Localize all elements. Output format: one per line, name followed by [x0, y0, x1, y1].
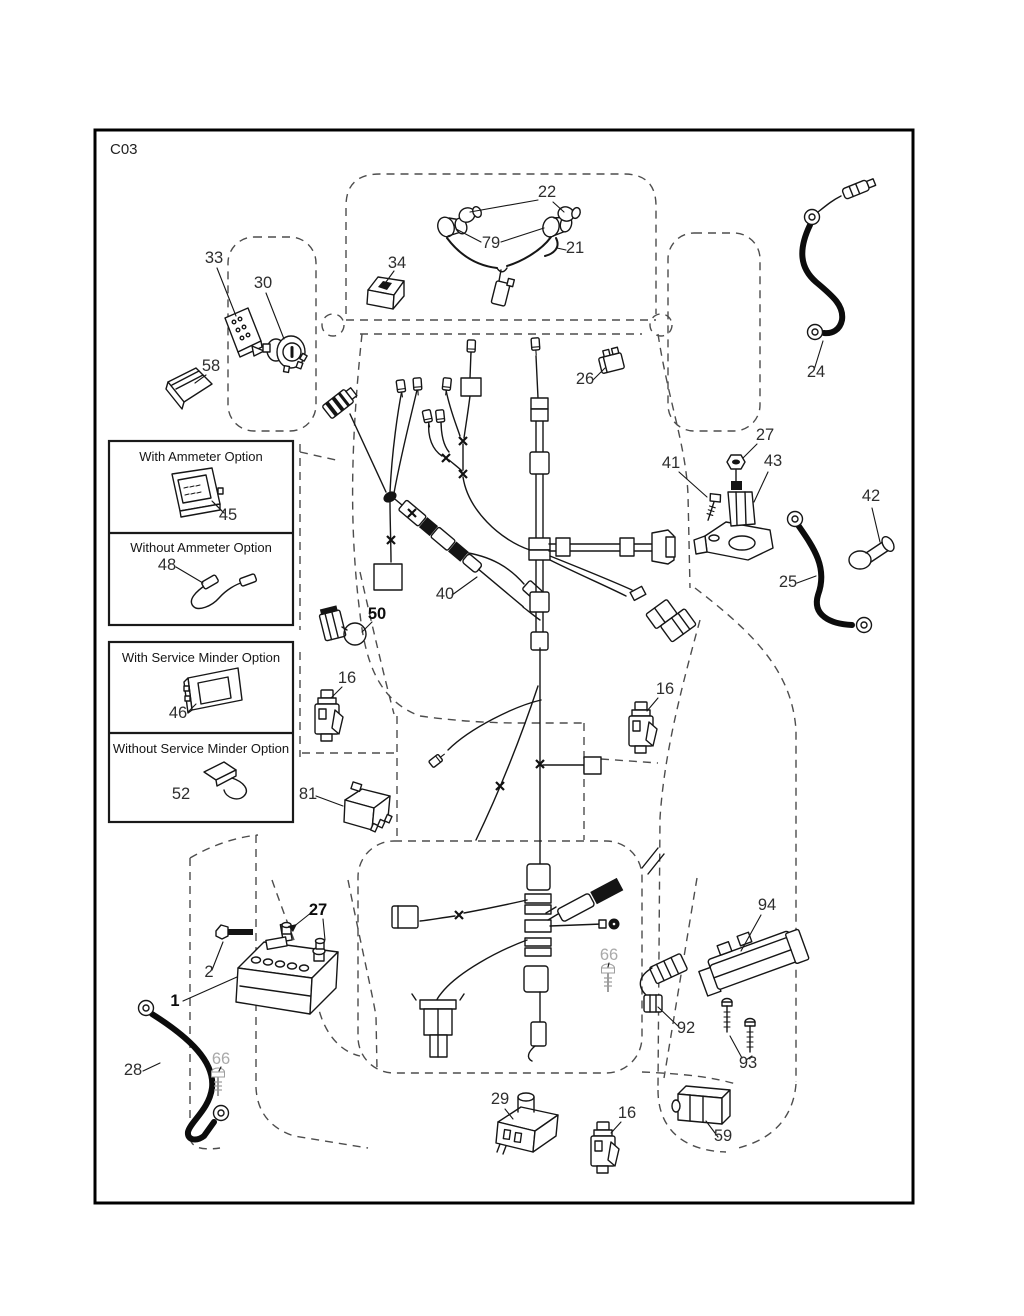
callout-27: 27 [756, 426, 774, 444]
service-minder-without-title: Without Service Minder Option [113, 741, 289, 756]
callout-16: 16 [618, 1104, 636, 1122]
lower-harness [392, 848, 664, 1061]
callout-93: 93 [739, 1054, 757, 1072]
interlock-switch-right [629, 702, 657, 753]
callout-24: 24 [807, 363, 825, 381]
ignition-switch [263, 336, 307, 372]
callout-66: 66 [212, 1050, 230, 1068]
callout-27: 27 [309, 901, 327, 919]
callout-48: 48 [158, 556, 176, 574]
center-loom [429, 338, 697, 866]
service-minder-option-box: With Service Minder Option Without Servi… [109, 642, 293, 822]
ammeter-with-title: With Ammeter Option [139, 449, 263, 464]
callout-50: 50 [368, 605, 386, 623]
terminal-boot [849, 535, 896, 569]
callout-45: 45 [219, 506, 237, 524]
callout-94: 94 [758, 896, 776, 914]
callout-33: 33 [205, 249, 223, 267]
callout-2: 2 [204, 963, 213, 981]
interlock-switch-bottom [591, 1122, 619, 1173]
callout-59: 59 [714, 1127, 732, 1145]
callout-21: 21 [566, 239, 584, 257]
callout-52: 52 [172, 785, 190, 803]
callout-79: 79 [482, 234, 500, 252]
callout-41: 41 [662, 454, 680, 472]
relay-module [672, 1086, 730, 1124]
callout-1: 1 [170, 992, 179, 1010]
battery [216, 923, 338, 1015]
callout-34: 34 [388, 254, 406, 272]
interlock-switch-left [315, 690, 343, 741]
callout-29: 29 [491, 1090, 509, 1108]
battery-nut [282, 923, 291, 935]
callout-16: 16 [338, 669, 356, 687]
callout-42: 42 [862, 487, 880, 505]
callout-81: 81 [299, 785, 317, 803]
callout-58: 58 [202, 357, 220, 375]
control-module [640, 916, 809, 1060]
ammeter-option-box: With Ammeter Option Without Ammeter Opti… [109, 441, 293, 625]
callout-26: 26 [576, 370, 594, 388]
callout-25: 25 [779, 573, 797, 591]
callout-16: 16 [656, 680, 674, 698]
battery-bolt [216, 925, 253, 939]
page-code: C03 [110, 141, 138, 158]
ground-cable-short [788, 512, 872, 633]
callout-92: 92 [677, 1019, 695, 1037]
main-harness-loom [386, 489, 543, 620]
callout-46: 46 [169, 704, 187, 722]
parts-diagram-page: C03 [0, 0, 1024, 1316]
callout-30: 30 [254, 274, 272, 292]
callout-22: 22 [538, 183, 556, 201]
ammeter-without-title: Without Ammeter Option [130, 540, 272, 555]
callout-40: 40 [436, 585, 454, 603]
callout-43: 43 [764, 452, 782, 470]
solenoid-screw [702, 492, 722, 522]
callout-28: 28 [124, 1061, 142, 1079]
solenoid-assembly [694, 455, 773, 560]
callout-66: 66 [600, 946, 618, 964]
headlight-harness [435, 205, 582, 307]
relay [344, 782, 392, 832]
service-minder-with-title: With Service Minder Option [122, 650, 280, 665]
connector-with-oring [318, 605, 366, 645]
keypad-module [225, 308, 264, 357]
screw-66-right [602, 964, 615, 992]
fuse [597, 347, 625, 374]
battery-cable-positive [802, 177, 876, 340]
diagram-canvas: C03 [0, 0, 1024, 1316]
